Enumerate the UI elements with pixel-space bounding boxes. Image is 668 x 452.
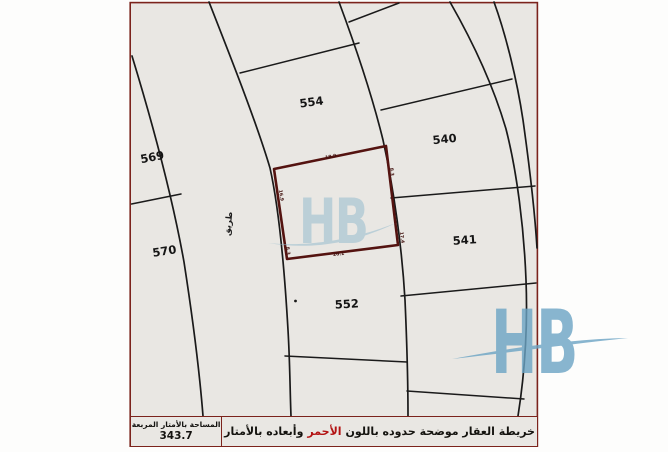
footer-caption: خريطة العقار موضحة حدوده باللون الأحمر و… — [222, 417, 537, 446]
parcel-541-label: 541 — [452, 232, 477, 248]
footer-title-bar: المساحة بالأمتار المربعة 343.7 خريطة الع… — [130, 416, 538, 447]
cadastral-map-canvas: 18.9 8.3 16.9 17.4 8.3 20.1 554 569 570 … — [0, 0, 668, 452]
area-value: 343.7 — [159, 430, 192, 442]
parcel-552-label: 552 — [334, 296, 359, 311]
footer-area-box: المساحة بالأمتار المربعة 343.7 — [131, 417, 222, 446]
parcel-540-label: 540 — [432, 131, 457, 147]
caption-word-red: الأحمر — [305, 425, 343, 438]
caption-text-start: خريطة العقار موضحة حدوده باللون — [344, 425, 537, 438]
survey-point-dot — [294, 300, 297, 303]
dimension-right-upper: 8.3 — [388, 168, 395, 177]
caption-text-end: وأبعاده بالأمتار — [222, 425, 305, 438]
dimension-left-lower: 8.3 — [284, 246, 291, 255]
cadastral-map-page: 18.9 8.3 16.9 17.4 8.3 20.1 554 569 570 … — [0, 0, 668, 452]
watermark-hb-center-text: HB — [299, 186, 368, 258]
area-label: المساحة بالأمتار المربعة — [132, 421, 221, 430]
